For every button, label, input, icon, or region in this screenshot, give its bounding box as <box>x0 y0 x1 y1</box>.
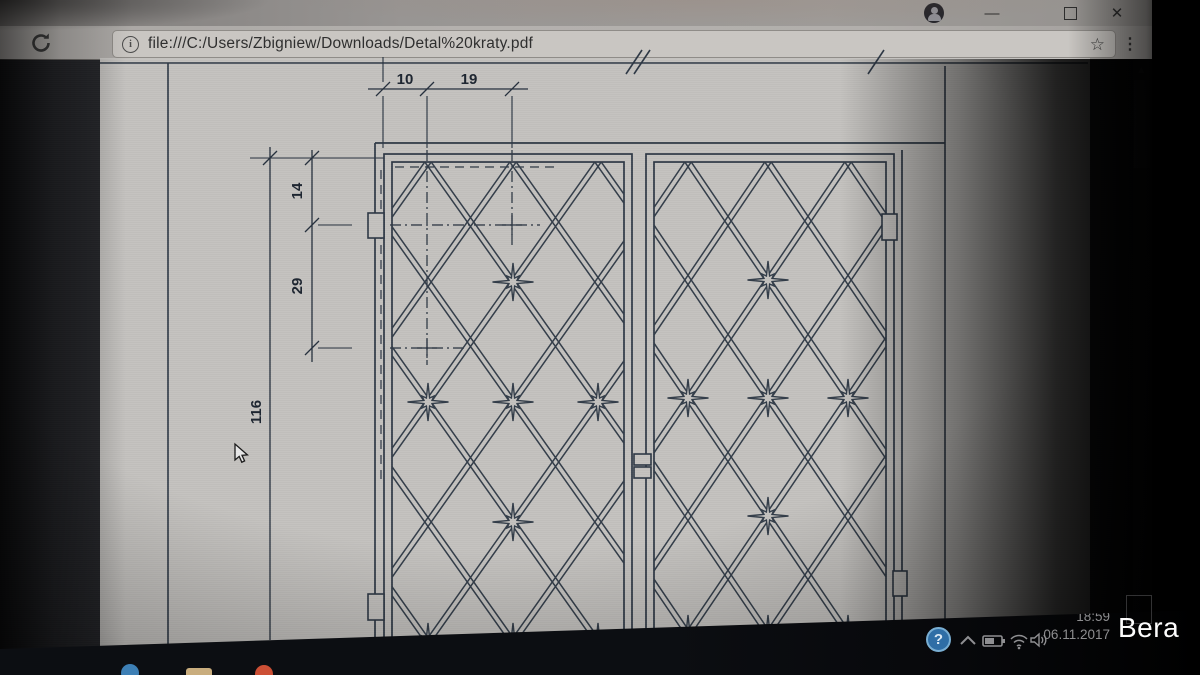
taskbar-app-icon[interactable] <box>121 664 139 675</box>
close-icon: ✕ <box>1111 4 1124 22</box>
page-info-icon[interactable]: i <box>122 36 139 53</box>
reload-button[interactable] <box>28 30 54 56</box>
monitor-screen: — ✕ i file:///C:/Users/Zbigniew/Download… <box>0 0 1200 675</box>
battery-icon[interactable] <box>982 633 1006 654</box>
maximize-button[interactable] <box>1050 0 1090 26</box>
profile-button[interactable] <box>924 3 944 23</box>
url-text: file:///C:/Users/Zbigniew/Downloads/Deta… <box>148 35 533 53</box>
tray-chevron-up-icon[interactable] <box>958 632 978 655</box>
reload-icon <box>28 30 54 56</box>
scrollbar-up-icon[interactable]: ▲ <box>1133 62 1150 78</box>
photo-watermark: Bera <box>1118 612 1179 644</box>
screen-photo: — ✕ i file:///C:/Users/Zbigniew/Download… <box>0 0 1200 675</box>
pdf-page <box>100 58 1090 658</box>
taskbar-app-icon[interactable] <box>255 665 273 675</box>
taskbar-app-icon[interactable] <box>186 668 212 675</box>
address-bar[interactable]: i file:///C:/Users/Zbigniew/Downloads/De… <box>112 30 1116 58</box>
bookmark-star-icon[interactable]: ☆ <box>1090 35 1105 55</box>
mouse-cursor-icon <box>232 442 250 471</box>
minimize-button[interactable]: — <box>972 0 1012 26</box>
scrollbar-thumb[interactable] <box>1134 80 1149 168</box>
browser-menu-button[interactable]: ⋮ <box>1120 33 1140 55</box>
clock-date: 06.11.2017 <box>1010 626 1110 644</box>
close-button[interactable]: ✕ <box>1097 0 1137 26</box>
minimize-icon: — <box>985 5 1000 22</box>
pdf-scrollbar[interactable]: ▲ <box>1133 60 1150 675</box>
help-tray-button[interactable]: ? <box>926 627 951 652</box>
browser-titlebar: — ✕ <box>0 0 1152 26</box>
person-icon <box>931 7 938 14</box>
person-icon <box>928 14 941 21</box>
maximize-icon <box>1064 7 1077 20</box>
